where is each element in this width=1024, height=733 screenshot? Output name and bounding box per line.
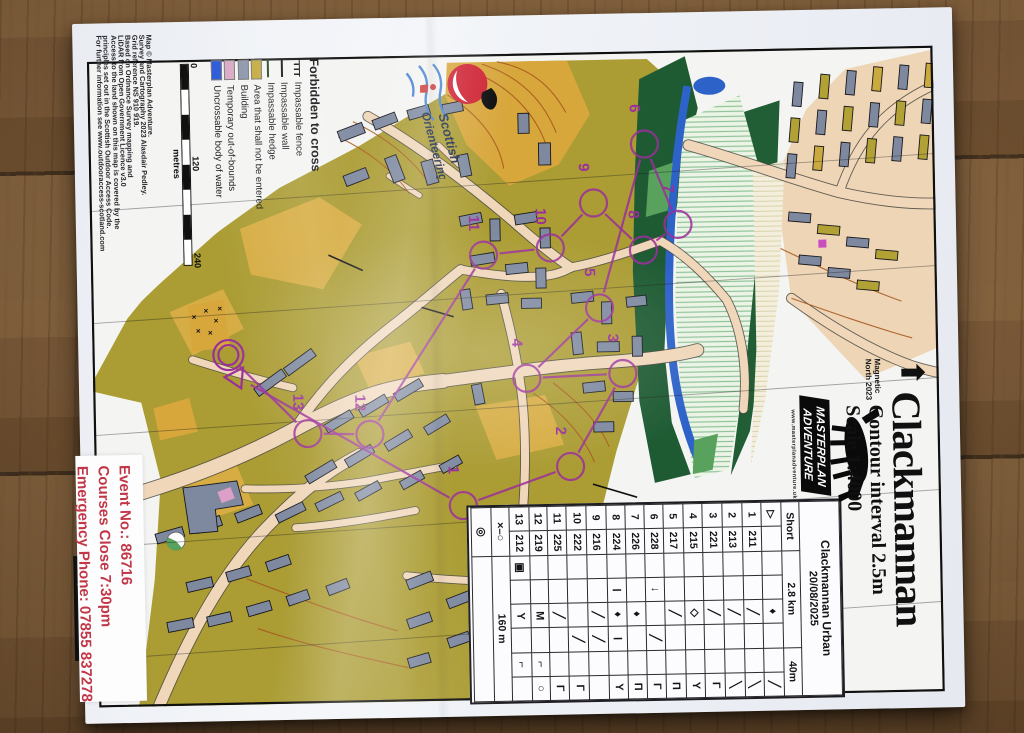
card-control-row-number: 10 xyxy=(566,506,586,531)
magnetic-north-arrow-icon: ⬆ xyxy=(896,360,926,386)
legend-item-label: Impassable wall xyxy=(278,82,290,150)
fence-line-icon xyxy=(294,59,300,77)
card-control-row-symbol xyxy=(587,554,607,579)
card-control-row-code: 221 xyxy=(703,527,723,552)
legend: Forbidden to cross Impassable fenceImpas… xyxy=(199,58,324,220)
control-number: 8 xyxy=(625,210,642,219)
control-number: 6 xyxy=(626,104,643,113)
card-control-row-symbol: ╲ xyxy=(745,672,765,697)
card-control-row-symbol xyxy=(567,554,587,579)
card-control-row-code: 211 xyxy=(742,527,762,552)
svg-text:×: × xyxy=(196,327,201,336)
control-number: 9 xyxy=(575,163,592,172)
card-control-row-number: 9 xyxy=(586,505,606,530)
card-control-row-symbol xyxy=(587,578,607,603)
card-control-row-symbol: M xyxy=(530,603,549,628)
card-control-row-number: 12 xyxy=(528,506,547,531)
card-control-row-symbol xyxy=(665,625,685,650)
card-control-row-symbol: Γ xyxy=(550,676,570,701)
legend-item-label: Impassable fence xyxy=(292,82,304,157)
card-control-row-symbol xyxy=(646,650,666,675)
card-control-row-number: 5 xyxy=(663,504,683,529)
legend-item-label: Uncrossable body of water xyxy=(211,85,224,198)
card-control-row-symbol xyxy=(548,555,568,580)
card-control-row-symbol xyxy=(510,580,530,605)
event-info-line: Courses Close 7:30pm xyxy=(92,465,117,691)
card-start-row-symbol: ♦ xyxy=(763,599,783,624)
card-control-row-number: 4 xyxy=(683,503,703,528)
svg-text:×: × xyxy=(192,313,197,322)
card-control-row-symbol: ╱ xyxy=(569,627,589,652)
control-number: 7 xyxy=(659,184,676,193)
card-control-row-symbol xyxy=(531,628,550,653)
card-control-row-symbol xyxy=(744,648,764,673)
card-finish-symbol: ◎ xyxy=(471,508,492,557)
card-control-row-number: 7 xyxy=(625,505,644,530)
card-control-row-number: 2 xyxy=(722,503,742,528)
card-control-row-symbol: ◇ xyxy=(684,600,704,625)
card-course-length: 2.8 km xyxy=(782,550,802,647)
card-control-row-symbol: ⌐ xyxy=(531,652,550,677)
card-control-row-symbol: Y xyxy=(686,673,706,698)
card-control-row-symbol xyxy=(704,624,724,649)
card-control-row-symbol: ╲ xyxy=(725,672,745,697)
card-control-row-code: 215 xyxy=(683,528,703,553)
masterplan-banner: MASTERPLAN ADVENTURE xyxy=(799,395,831,496)
card-control-row-symbol: ↓ xyxy=(645,577,665,602)
card-control-row-symbol: ⌐ xyxy=(512,652,532,677)
card-start-row-symbol xyxy=(762,575,782,600)
card-control-row-symbol: ♦ xyxy=(607,602,627,627)
card-start-row-code xyxy=(761,526,781,551)
card-control-row-symbol xyxy=(589,675,609,700)
svg-text:×: × xyxy=(217,304,222,313)
control-number: 1 xyxy=(445,466,462,475)
card-control-row-symbol xyxy=(606,553,626,578)
card-control-row-number: 13 xyxy=(509,507,529,532)
card-control-row-code: 228 xyxy=(644,528,664,553)
card-start-row-symbol xyxy=(763,623,783,648)
card-control-row-number: 1 xyxy=(741,502,761,527)
card-control-row-number: 11 xyxy=(547,506,567,531)
card-control-row-symbol xyxy=(703,552,723,577)
card-control-row-code: 217 xyxy=(663,528,683,553)
event-info-box: Event No.: 86716Courses Close 7:30pmEmer… xyxy=(75,455,147,702)
card-control-row-symbol: Ⅰ xyxy=(607,578,627,603)
card-control-row-symbol xyxy=(664,577,684,602)
card-control-row-symbol xyxy=(529,555,548,580)
card-control-row-symbol xyxy=(568,603,588,628)
card-control-row-symbol: Π xyxy=(666,674,686,699)
card-course-climb: 40m xyxy=(783,647,802,696)
card-control-row-symbol: ╱ xyxy=(665,601,685,626)
card-control-row-symbol xyxy=(645,601,665,626)
card-control-row-symbol xyxy=(742,551,762,576)
legend-item-label: Building xyxy=(238,85,250,119)
svg-text:×: × xyxy=(208,328,213,337)
card-control-row-symbol: ╱ xyxy=(646,625,666,650)
area-swatch-icon xyxy=(251,59,262,79)
card-control-row-symbol: ╱ xyxy=(743,599,763,624)
event-info-line: Event No.: 86716 xyxy=(113,465,138,691)
card-control-row-symbol xyxy=(511,628,531,653)
card-control-row-symbol xyxy=(744,624,764,649)
card-control-row-symbol: ╱ xyxy=(588,627,608,652)
card-control-row-symbol: Y xyxy=(511,604,531,629)
scale-bar: 0 120 240 metres xyxy=(171,64,203,284)
title-block: ⬆ Clackmannan Contour interval 2.5m Scal… xyxy=(831,360,932,692)
legend-items: Impassable fenceImpassable wallImpassabl… xyxy=(209,59,307,221)
card-control-row-symbol xyxy=(549,627,569,652)
card-control-row-symbol xyxy=(608,650,628,675)
card-control-row-symbol xyxy=(685,649,705,674)
card-control-row-symbol: Γ xyxy=(570,675,590,700)
card-control-row-symbol xyxy=(723,551,743,576)
card-control-row-symbol: ▣ xyxy=(510,555,530,580)
control-number: 4 xyxy=(508,338,525,347)
card-control-row-symbol xyxy=(644,553,664,578)
card-control-row-symbol xyxy=(628,650,647,675)
card-control-row-number: 3 xyxy=(702,503,722,528)
scale-label-240: 240 xyxy=(192,253,202,268)
card-finish-route-distance: 160 m xyxy=(492,556,513,702)
card-control-row-code: 224 xyxy=(606,529,626,554)
card-control-row-symbol: Y xyxy=(609,675,629,700)
control-descriptions-card: Clackmannan Urban20/08/2025Short2.8 km40… xyxy=(466,498,845,704)
control-number: 10 xyxy=(532,208,549,225)
legend-item-label: Temporary out-of-bounds xyxy=(224,85,237,191)
building-swatch-icon xyxy=(237,60,248,80)
card-control-row-symbol xyxy=(627,577,646,602)
card-control-row-symbol: Π xyxy=(628,674,647,699)
card-control-row-symbol: ╱ xyxy=(588,602,608,627)
card-control-row-symbol: ♦ xyxy=(627,602,646,627)
control-number: 5 xyxy=(581,268,598,277)
card-start-row-symbol xyxy=(762,550,782,575)
card-control-row-symbol xyxy=(725,648,745,673)
card-control-row-symbol xyxy=(705,649,725,674)
card-control-row-symbol xyxy=(743,575,763,600)
control-number: 2 xyxy=(552,427,569,436)
photo-scene: { "accent_colors": { "course_purple": "#… xyxy=(0,0,1024,733)
card-control-row-symbol xyxy=(627,626,646,651)
card-control-row-code: 222 xyxy=(567,530,587,555)
map-sheet-paper: ××× ××× 12345678910111213 0 120 240 metr… xyxy=(72,7,965,724)
card-control-row-code: 219 xyxy=(529,531,548,556)
masterplan-logo-line1: MASTERPLAN xyxy=(813,406,826,488)
control-number: 13 xyxy=(289,394,306,411)
card-start-row-symbol xyxy=(764,647,784,672)
control-number: 11 xyxy=(465,215,482,231)
card-control-row-symbol xyxy=(723,575,743,600)
card-finish-route-symbol: ×–○ xyxy=(491,507,510,556)
map-title: Clackmannan xyxy=(886,391,931,627)
card-control-row-number: 6 xyxy=(643,504,663,529)
scale-label-0: 0 xyxy=(189,63,199,68)
card-control-row-symbol xyxy=(666,649,686,674)
card-control-row-symbol xyxy=(704,576,724,601)
scale-label-120: 120 xyxy=(191,156,201,171)
magnetic-north-label: Magnetic North 2023 xyxy=(864,359,883,409)
legend-item-label: Impassable hedge xyxy=(265,82,277,160)
map-credits: Map © Masterplan Adventure.Survey and Ca… xyxy=(95,34,157,312)
svg-text:×: × xyxy=(203,306,208,315)
card-control-row-symbol xyxy=(683,552,703,577)
card-control-row-symbol: ╱ xyxy=(704,600,724,625)
card-control-row-symbol: Γ xyxy=(647,674,667,699)
card-start-row-symbol: ╱ xyxy=(764,672,784,697)
card-control-row-symbol xyxy=(568,578,588,603)
card-control-row-code: 212 xyxy=(509,531,529,556)
control-number: 3 xyxy=(604,334,621,343)
card-control-row-symbol xyxy=(684,576,704,601)
card-control-row-symbol xyxy=(589,651,609,676)
card-control-row-symbol xyxy=(664,552,684,577)
wall-line-icon xyxy=(280,59,282,77)
masterplan-logo-line2: ADVENTURE xyxy=(801,407,814,483)
control-number: 12 xyxy=(351,394,368,411)
card-control-row-symbol xyxy=(685,625,705,650)
card-control-row-symbol: Γ xyxy=(705,673,725,698)
water-swatch-icon xyxy=(210,60,221,80)
card-control-row-code: 216 xyxy=(586,530,606,555)
card-control-row-symbol xyxy=(530,579,549,604)
card-control-row-symbol xyxy=(724,624,744,649)
scottish-orienteering-logo: Scottish Orienteering xyxy=(388,55,505,180)
card-control-row-symbol xyxy=(550,652,570,677)
course-leg-line xyxy=(324,433,354,435)
card-control-row-symbol xyxy=(569,651,589,676)
card-control-row-symbol: ○ xyxy=(532,676,551,701)
card-control-row-number: 8 xyxy=(606,505,626,530)
card-control-row-symbol: Ⅰ xyxy=(608,626,628,651)
svg-text:×: × xyxy=(214,316,219,325)
legend-item-label: Area that shall not be entered xyxy=(251,84,264,209)
control-descriptions-table: Clackmannan Urban20/08/2025Short2.8 km40… xyxy=(470,500,843,702)
card-control-row-symbol: ╱ xyxy=(724,600,744,625)
masterplan-website: www.masterplanadventure.uk xyxy=(789,389,797,519)
hedge-line-icon xyxy=(267,59,269,77)
card-control-row-symbol: ╱ xyxy=(549,603,569,628)
card-control-row-code: 226 xyxy=(626,529,645,554)
card-control-row-code: 213 xyxy=(722,527,742,552)
card-control-row-symbol xyxy=(512,677,532,702)
oob-swatch-icon xyxy=(224,60,235,80)
card-control-row-code: 225 xyxy=(547,530,567,555)
card-blank xyxy=(472,556,495,702)
card-control-row-symbol xyxy=(626,553,645,578)
event-info-line: Emergency Phone: 07855 837278 xyxy=(71,466,96,692)
card-control-row-symbol xyxy=(548,579,568,604)
